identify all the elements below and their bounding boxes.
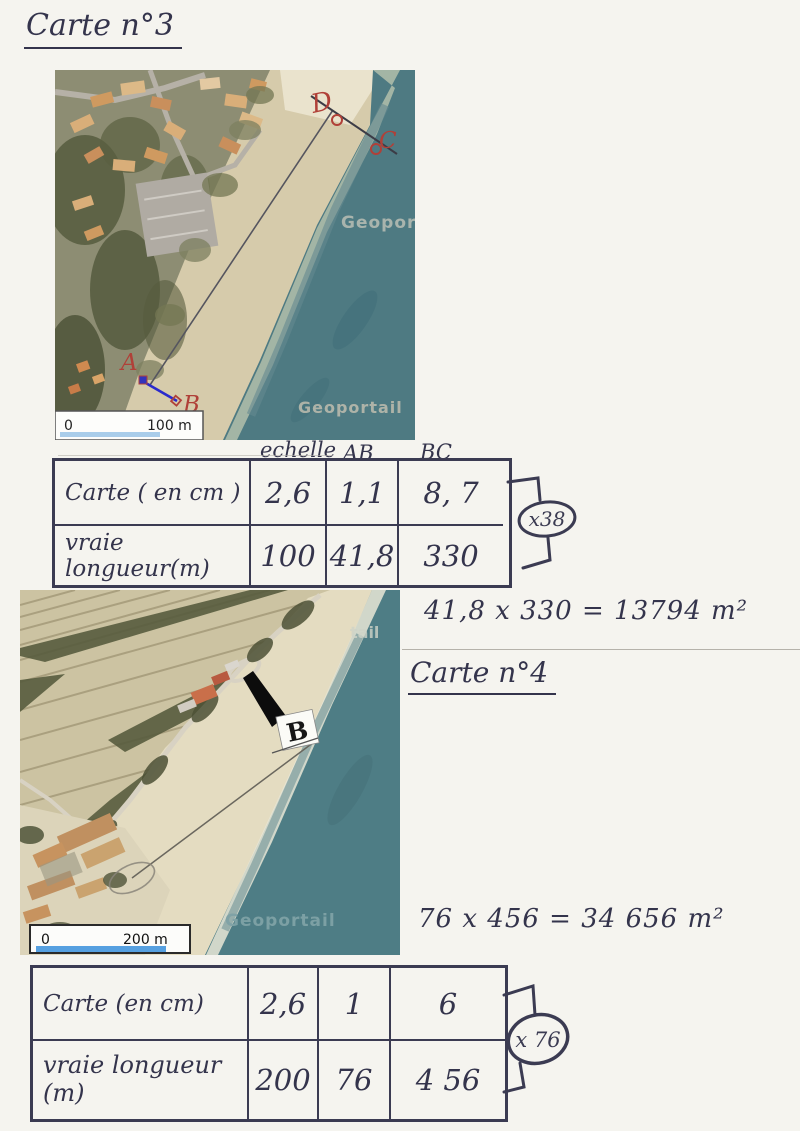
- photo1-scalebar: 0 100 m: [55, 411, 203, 440]
- table1-multiplier-bracket: x38: [506, 455, 586, 587]
- table1-row2-label: vraie longueur(m): [55, 526, 251, 585]
- stray-pencil-line: [58, 455, 333, 456]
- table2-row1-echelle: 2,6: [249, 968, 319, 1041]
- photo1-watermark-mid: Geopor: [341, 213, 415, 233]
- table2-row2-ab: 76: [319, 1041, 391, 1119]
- table2-row2-bc: 4 56: [391, 1041, 505, 1119]
- area-calculation-1: 41,8 x 330 = 13794 m²: [424, 596, 748, 626]
- table1-multiplier-value: x38: [529, 507, 566, 531]
- photo2-scalebar-start: 0: [41, 932, 50, 948]
- table2-multiplier-bracket: x 76: [502, 975, 592, 1125]
- photo1-point-c-label: C: [379, 128, 397, 154]
- table1-row2-ab: 41,8: [327, 526, 399, 585]
- table2-multiplier-value: x 76: [515, 1028, 560, 1052]
- photo2-watermark-sea: Geoportail: [225, 911, 336, 931]
- table2-row1-bc: 6: [391, 968, 505, 1041]
- table2-row1-ab: 1: [319, 968, 391, 1041]
- page-title-carte4: Carte n°4: [408, 656, 556, 695]
- table2-row2-echelle: 200: [249, 1041, 319, 1119]
- photo2-scalebar-end: 200 m: [123, 932, 168, 948]
- table1-row1-label: Carte ( en cm ): [55, 461, 251, 526]
- table2-row2-label: vraie longueur (m): [33, 1041, 249, 1119]
- table1-row2-echelle: 100: [251, 526, 327, 585]
- page-title-carte3: Carte n°3: [24, 8, 182, 49]
- table1-row1-ab: 1,1: [327, 461, 399, 526]
- photo2-watermark-top: tail: [350, 623, 379, 642]
- table2-row1-label: Carte (en cm): [33, 968, 249, 1041]
- photo1-scalebar-start: 0: [64, 418, 73, 434]
- photo1-watermark-bottom: Geoportail: [298, 398, 403, 417]
- aerial-photo-1: D C A B Geopor Geoportail 0 100 m: [55, 70, 415, 440]
- ruled-line: [402, 649, 800, 650]
- table2: Carte (en cm) 2,6 1 6 vraie longueur (m)…: [30, 965, 508, 1122]
- photo1-point-a-label: A: [119, 350, 138, 376]
- photo2-scalebar: 0 200 m: [30, 925, 190, 953]
- table1-row2-bc: 330: [399, 526, 503, 585]
- aerial-photo-2: B tail Geoportail 0 200 m: [20, 590, 400, 955]
- table1: Carte ( en cm ) 2,6 1,1 8, 7 vraie longu…: [52, 458, 512, 588]
- table1-row1-bc: 8, 7: [399, 461, 503, 526]
- area-calculation-2: 76 x 456 = 34 656 m²: [418, 904, 725, 934]
- photo1-scalebar-end: 100 m: [147, 418, 192, 434]
- scanned-worksheet-page: Carte n°3: [0, 0, 800, 1131]
- table1-row1-echelle: 2,6: [251, 461, 327, 526]
